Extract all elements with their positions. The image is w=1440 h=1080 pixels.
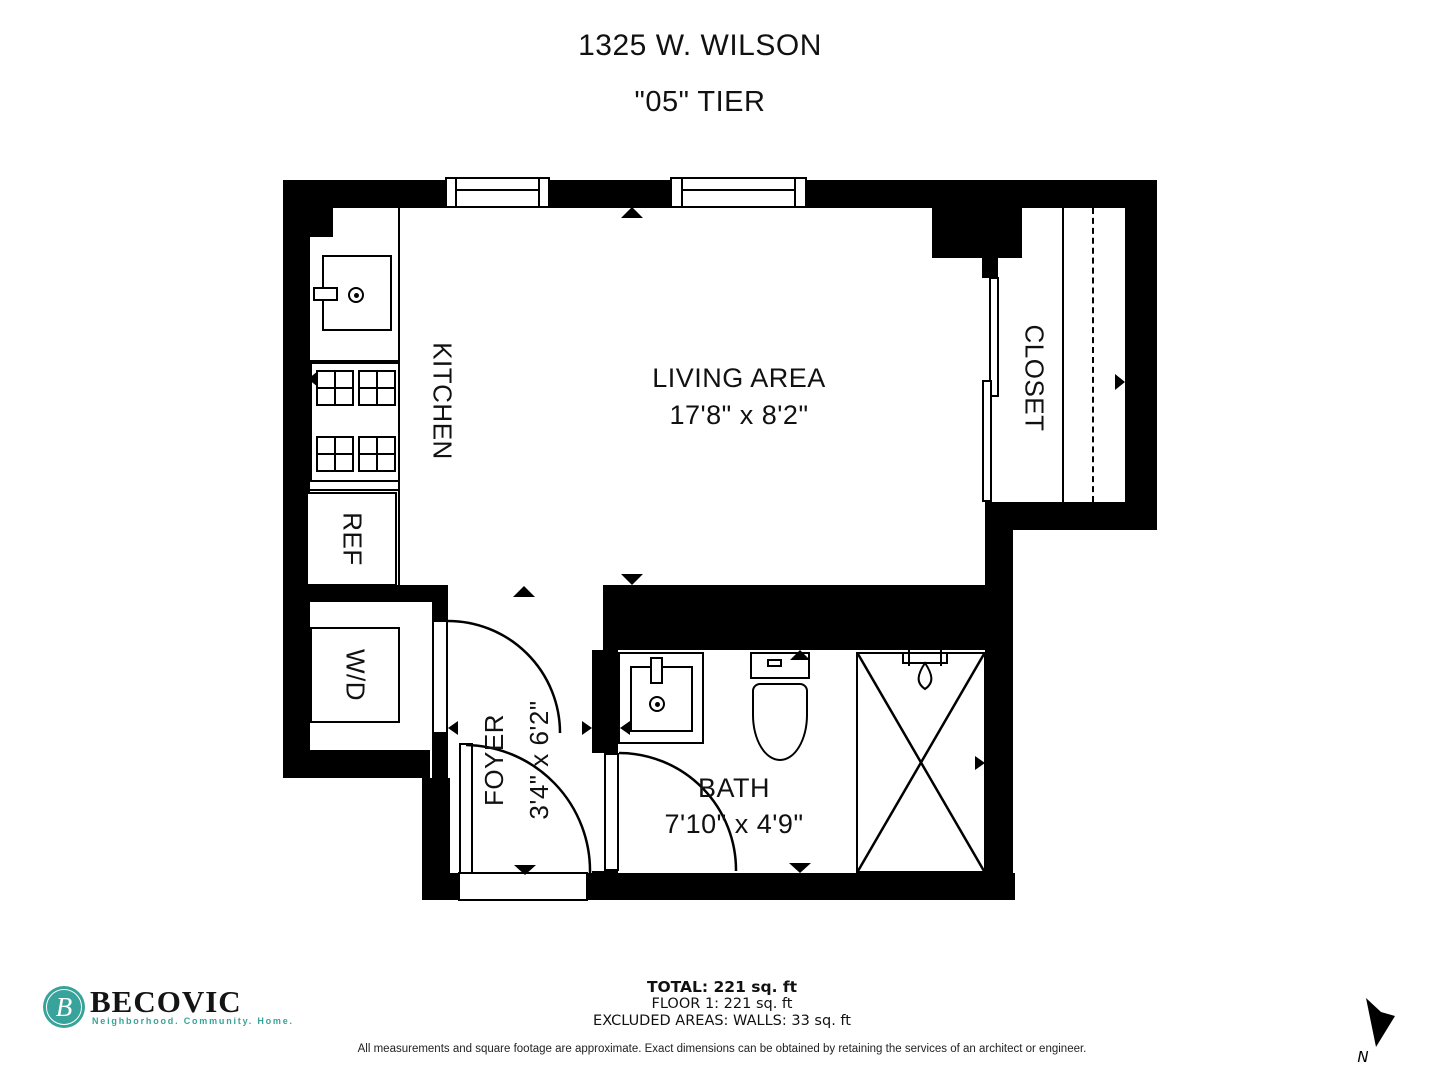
burner-line xyxy=(376,370,378,406)
kitchen-sink-drain-dot xyxy=(354,293,359,298)
stat-total: TOTAL: 221 sq. ft xyxy=(593,979,851,996)
kitchen-label: KITCHEN xyxy=(427,342,458,460)
toilet-flush-button xyxy=(767,659,782,667)
stove-burner xyxy=(358,436,396,472)
brand-tagline: Neighborhood. Community. Home. xyxy=(92,1016,294,1026)
wall-right-lower xyxy=(985,502,1013,900)
entry-door-leaf xyxy=(459,743,473,874)
plan-overlay xyxy=(0,0,1440,1080)
burner-line xyxy=(334,370,336,406)
foyer-dims: 3'4" x 6'2" xyxy=(517,700,562,819)
window-2-jamb-right xyxy=(794,177,796,208)
becovic-logo-letter: B xyxy=(43,986,85,1028)
living-area-name: LIVING AREA xyxy=(652,360,826,397)
dim-arrow-closet-right xyxy=(1115,374,1125,390)
living-area-label: LIVING AREA 17'8" x 8'2" xyxy=(652,360,826,434)
brand-name: BECOVIC xyxy=(90,984,242,1020)
bath-dims: 7'10" x 4'9" xyxy=(664,806,803,842)
north-arrow-icon xyxy=(1366,998,1395,1047)
page-title: 1325 W. WILSON xyxy=(578,29,822,63)
window-1 xyxy=(445,177,550,208)
shower-stall xyxy=(856,652,986,873)
north-label: N xyxy=(1357,1048,1368,1066)
stove xyxy=(310,362,400,482)
stove-burner xyxy=(316,370,354,406)
wall-right xyxy=(1125,180,1157,530)
wall-kitchen-wd-divider xyxy=(283,585,448,602)
window-1-jamb-right xyxy=(538,177,540,208)
burner-line xyxy=(376,436,378,472)
foyer-name: FOYER xyxy=(472,700,517,819)
kitchen-sink-drain xyxy=(348,287,364,303)
disclaimer-text: All measurements and square footage are … xyxy=(358,1043,1087,1055)
closet-shelf-line xyxy=(1062,208,1064,502)
stat-floor: FLOOR 1: 221 sq. ft xyxy=(593,996,851,1013)
closet-sliding-door-2 xyxy=(982,380,992,502)
wall-bath-top xyxy=(603,585,1013,650)
stove-burner xyxy=(316,436,354,472)
window-1-jamb-left xyxy=(455,177,457,208)
dim-arrow-foyer-left xyxy=(448,721,458,735)
stove-burner xyxy=(358,370,396,406)
area-stats: TOTAL: 221 sq. ft FLOOR 1: 221 sq. ft EX… xyxy=(593,979,851,1030)
stat-excluded: EXCLUDED AREAS: WALLS: 33 sq. ft xyxy=(593,1013,851,1030)
kitchen-counter-sep-lower xyxy=(310,489,399,491)
bath-label: BATH 7'10" x 4'9" xyxy=(664,770,803,842)
wall-wd-right-upper xyxy=(432,585,448,620)
closet-rod-dashed-line xyxy=(1092,208,1094,502)
wall-notch-top-right xyxy=(932,208,1022,258)
wd-door-leaf xyxy=(432,620,448,734)
window-2-glass-line xyxy=(683,189,794,191)
wd-label: W/D xyxy=(340,649,371,701)
wall-corner-top-left xyxy=(283,180,333,237)
window-2-jamb-left xyxy=(681,177,683,208)
window-1-glass-line xyxy=(457,189,538,191)
bath-door-leaf xyxy=(604,753,619,871)
dim-arrow-living-top xyxy=(621,207,643,218)
wall-notch-stub xyxy=(982,256,998,278)
dim-arrow-foyer-right xyxy=(582,721,592,735)
floorplan-page: 1325 W. WILSON "05" TIER xyxy=(0,0,1440,1080)
becovic-logo: B xyxy=(43,986,85,1028)
wall-wd-right-lower xyxy=(432,733,448,778)
dim-arrow-foyer-top xyxy=(513,586,535,597)
foyer-label: FOYER 3'4" x 6'2" xyxy=(472,700,562,819)
closet-label: CLOSET xyxy=(1019,324,1050,431)
dim-arrow-living-bottom xyxy=(621,574,643,585)
toilet-bowl xyxy=(752,683,808,761)
ref-label: REF xyxy=(337,512,368,566)
bath-name: BATH xyxy=(664,770,803,806)
living-area-dims: 17'8" x 8'2" xyxy=(652,397,826,434)
wall-left xyxy=(283,180,310,778)
tier-subtitle: "05" TIER xyxy=(635,86,766,119)
bath-sink-drain xyxy=(649,696,665,712)
entry-door-opening xyxy=(458,872,588,901)
window-2 xyxy=(670,177,807,208)
wall-bath-foyer-lower xyxy=(592,871,618,900)
bath-sink-faucet xyxy=(650,657,663,684)
closet-sliding-door-1 xyxy=(989,277,999,397)
dim-arrow-bath-bottom xyxy=(789,863,811,873)
burner-line xyxy=(334,436,336,472)
wall-bath-foyer-upper xyxy=(592,650,618,753)
bath-sink-drain-dot xyxy=(655,702,660,707)
wall-wd-bottom xyxy=(283,750,430,778)
kitchen-sink-faucet xyxy=(313,287,338,301)
